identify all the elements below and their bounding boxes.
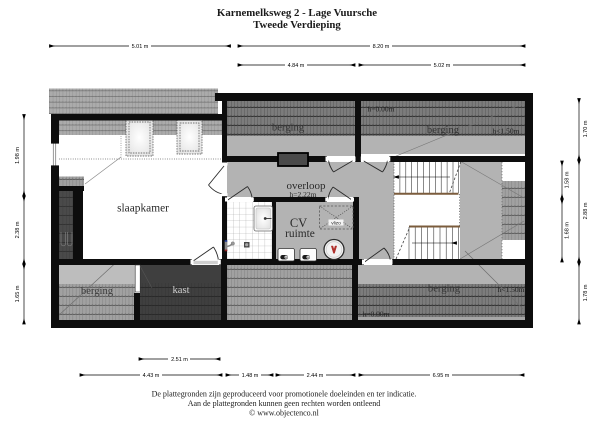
svg-text:5.01 m: 5.01 m [132, 44, 149, 50]
svg-text:6.95 m: 6.95 m [433, 373, 450, 379]
svg-text:vlizo: vlizo [331, 220, 341, 226]
svg-text:4.43 m: 4.43 m [143, 373, 160, 379]
svg-text:h=0.00m: h=0.00m [363, 310, 390, 319]
svg-text:1.98 m: 1.98 m [15, 147, 21, 164]
svg-text:Aan de plattegronden kunnen ge: Aan de plattegronden kunnen geen rechten… [188, 399, 381, 408]
svg-text:Tweede Verdieping: Tweede Verdieping [253, 19, 341, 31]
svg-text:berging: berging [427, 125, 460, 136]
svg-text:4.84 m: 4.84 m [288, 63, 305, 69]
svg-text:1.68 m: 1.68 m [565, 222, 571, 239]
svg-text:1.58 m: 1.58 m [565, 171, 571, 188]
svg-text:2.38 m: 2.38 m [15, 221, 21, 238]
svg-text:1.70 m: 1.70 m [583, 120, 589, 137]
svg-text:2.51 m: 2.51 m [171, 357, 188, 363]
svg-text:h<1.50m: h<1.50m [493, 127, 520, 136]
svg-text:berging: berging [81, 286, 114, 297]
svg-text:ruimte: ruimte [285, 228, 315, 240]
svg-text:kast: kast [172, 285, 189, 296]
svg-text:1.65 m: 1.65 m [15, 285, 21, 302]
svg-text:De plattegronden zijn geproduc: De plattegronden zijn geproduceerd voor … [152, 390, 417, 399]
svg-text:h=2.22m: h=2.22m [290, 190, 317, 199]
svg-text:5.02 m: 5.02 m [434, 63, 451, 69]
svg-text:8.20 m: 8.20 m [373, 44, 390, 50]
svg-text:h<1.50m: h<1.50m [498, 285, 525, 294]
svg-text:berging: berging [272, 123, 305, 134]
svg-text:© www.objectenco.nl: © www.objectenco.nl [249, 409, 320, 418]
svg-text:1.48 m: 1.48 m [242, 373, 259, 379]
svg-text:2.88 m: 2.88 m [583, 202, 589, 219]
svg-text:berging: berging [428, 284, 461, 295]
svg-text:Karnemelksweg 2 - Lage Vuursch: Karnemelksweg 2 - Lage Vuursche [217, 7, 377, 19]
svg-text:1.78 m: 1.78 m [583, 284, 589, 301]
svg-text:slaapkamer: slaapkamer [117, 203, 169, 215]
svg-text:h=0.00m: h=0.00m [368, 105, 395, 114]
svg-text:2.44 m: 2.44 m [307, 373, 324, 379]
